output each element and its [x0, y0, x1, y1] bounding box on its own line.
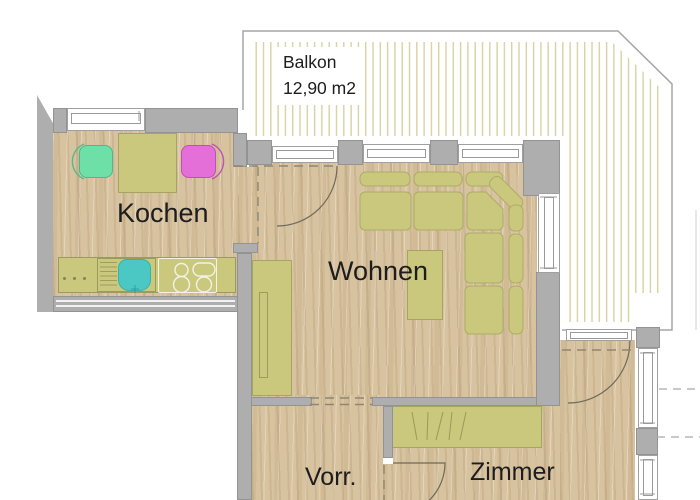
door-arc-vorraum-zimmer — [393, 463, 445, 500]
door-arc-wohnen-balcony — [277, 166, 337, 226]
window-ticks — [139, 111, 655, 494]
chair-backrest-arcs — [72, 144, 223, 179]
sink-drain-cross — [131, 285, 139, 293]
stove-burners — [174, 263, 216, 293]
floor-plan: Kochen Wohnen Vorr. Zimmer Balkon 12,90 … — [0, 0, 700, 500]
symbol-layer — [0, 0, 700, 500]
reference-marks — [657, 210, 700, 437]
sofa — [360, 172, 525, 334]
wardrobe-hatch-marks — [412, 412, 466, 440]
